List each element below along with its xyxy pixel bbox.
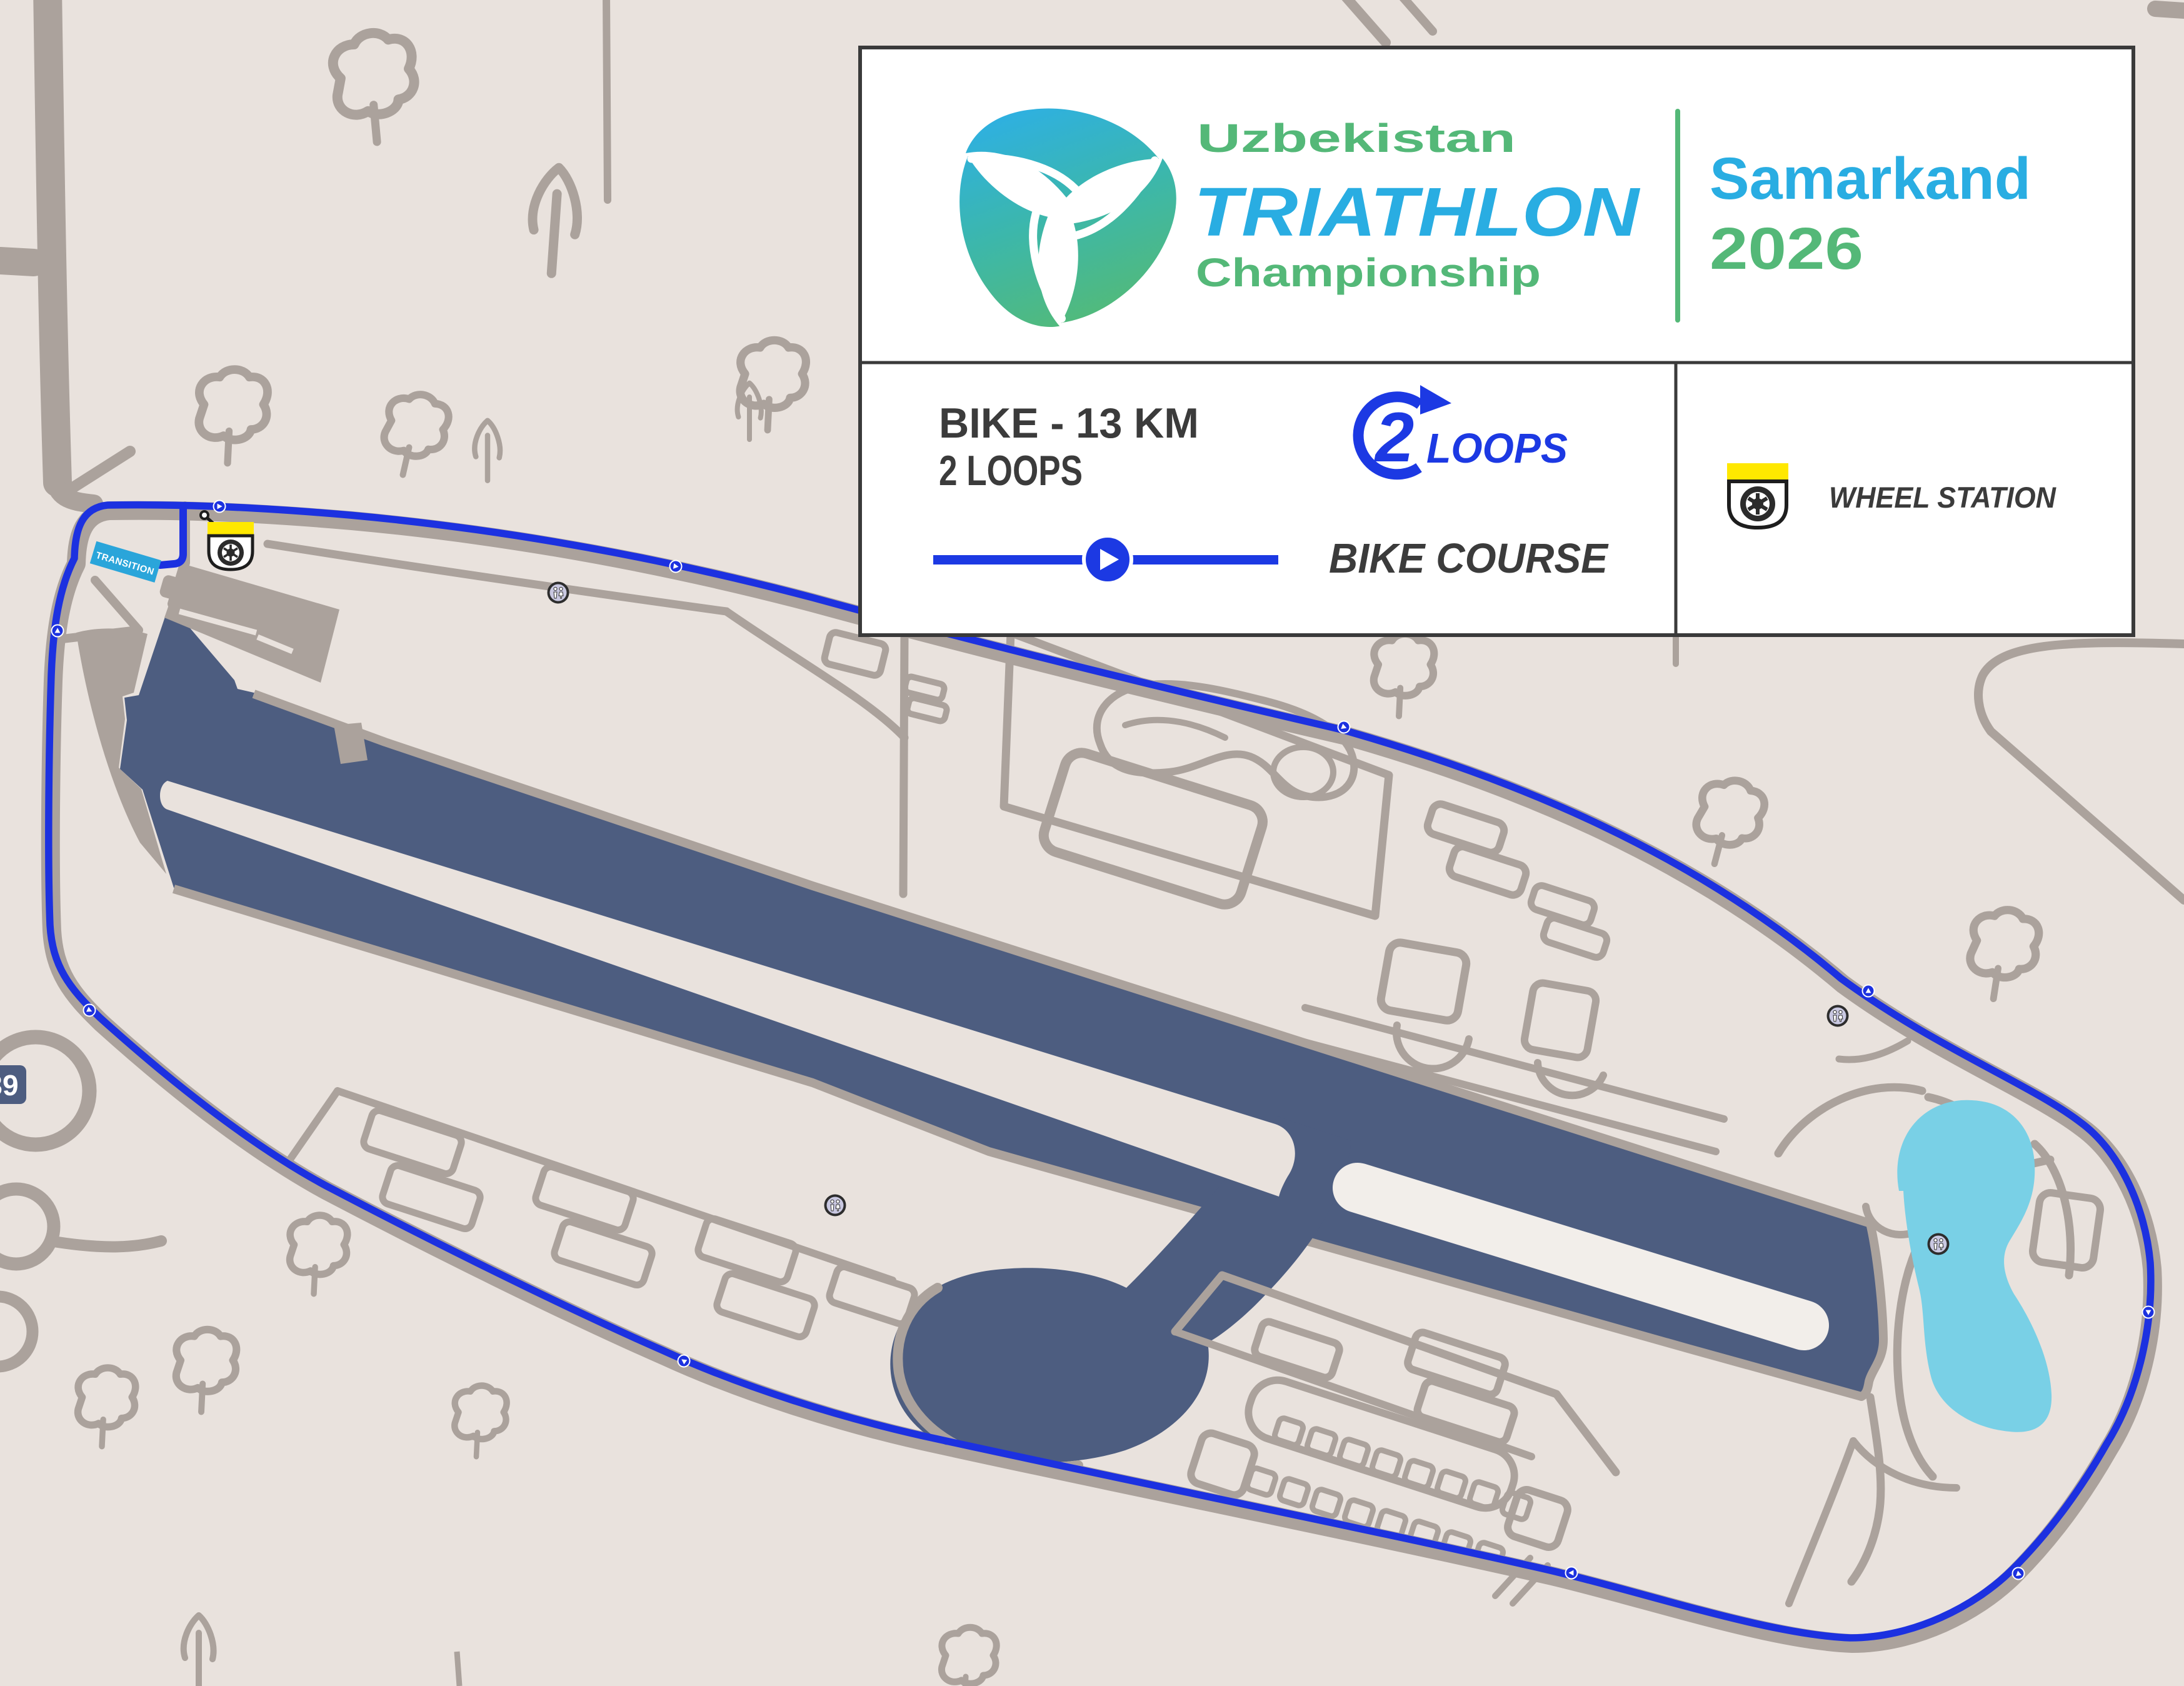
svg-text:2: 2: [1374, 398, 1414, 476]
svg-text:WHEEL STATION: WHEEL STATION: [1829, 481, 2056, 514]
svg-text:TRIATHLON: TRIATHLON: [1194, 174, 1641, 251]
svg-text:2026: 2026: [1710, 216, 1863, 282]
svg-text:LOOPS: LOOPS: [1426, 425, 1568, 472]
svg-text:BIKE - 13 KM: BIKE - 13 KM: [939, 399, 1199, 447]
svg-text:Uzbekistan: Uzbekistan: [1197, 116, 1516, 161]
svg-text:Championship: Championship: [1196, 250, 1541, 295]
svg-text:BIKE COURSE: BIKE COURSE: [1329, 535, 1609, 582]
svg-text:39: 39: [0, 1069, 19, 1101]
svg-text:2 LOOPS: 2 LOOPS: [939, 447, 1083, 494]
svg-text:Samarkand: Samarkand: [1710, 146, 2031, 212]
